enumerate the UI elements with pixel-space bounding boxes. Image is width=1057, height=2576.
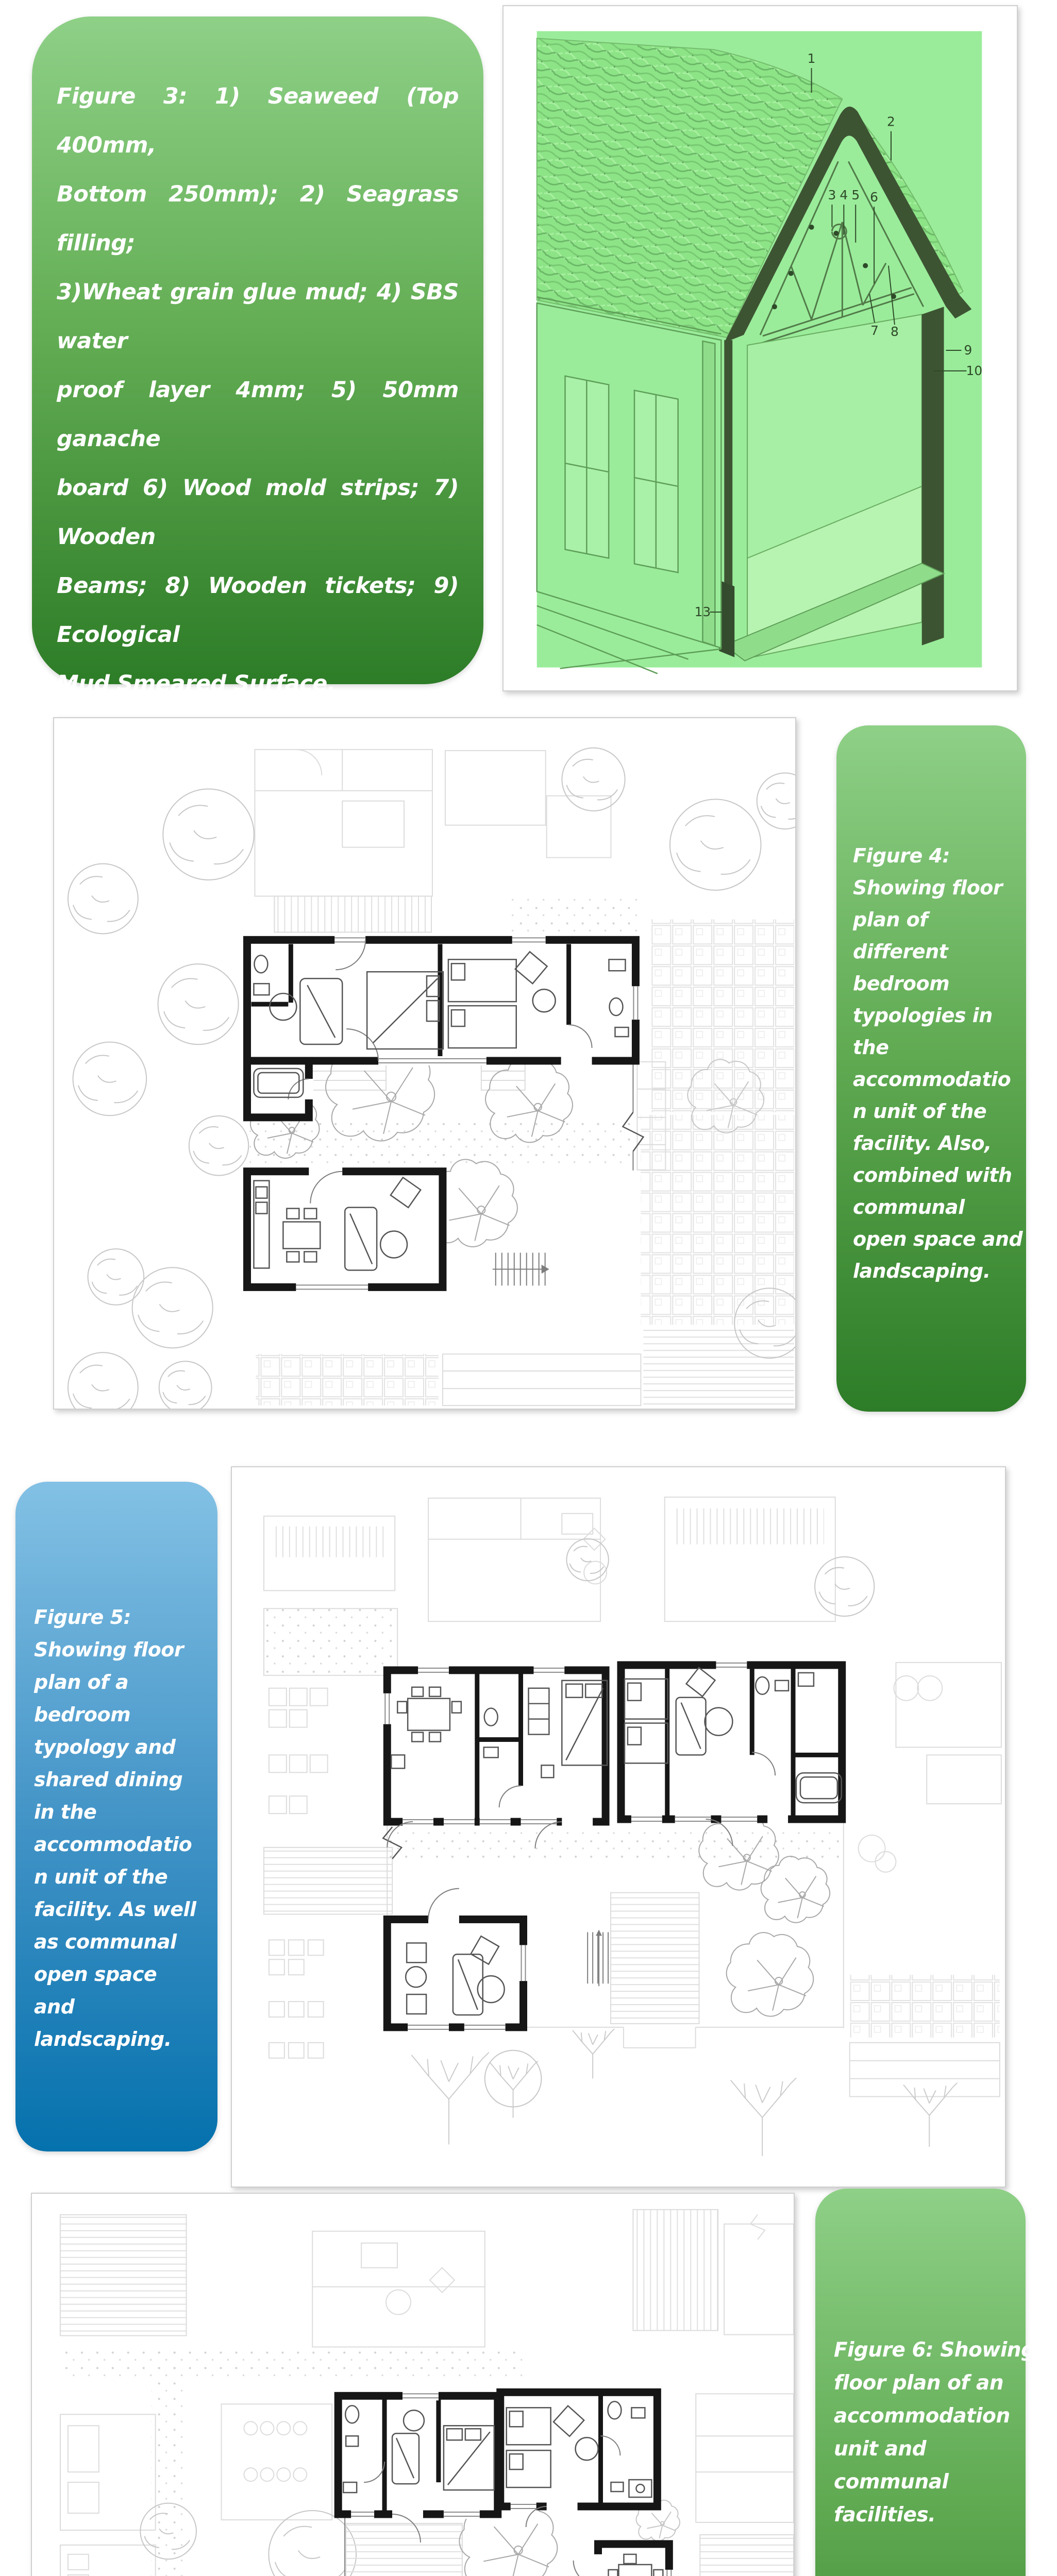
- figure3-caption-box: Figure 3: 1) Seaweed (Top 400mm,Bottom 2…: [32, 16, 483, 684]
- caption-line: Figure 3: 1) Seaweed (Top 400mm,: [57, 72, 459, 170]
- caption-line: Showing floor: [853, 872, 1013, 904]
- caption-line: Figure 6: Showing: [834, 2334, 1012, 2367]
- site-background: [264, 1497, 1001, 2156]
- figure3-caption: Figure 3: 1) Seaweed (Top 400mm,Bottom 2…: [57, 72, 459, 708]
- caption-line: communal: [853, 1191, 1013, 1223]
- caption-line: Bottom 250mm); 2) Seagrass filling;: [57, 170, 459, 268]
- callout-2: 2: [887, 114, 895, 129]
- callout-5: 5: [851, 188, 860, 202]
- house-cutaway-drawing: 1 2 3 4 5 6 7 8 9 10 13: [504, 6, 1017, 690]
- floor-plan-figure4: [54, 718, 795, 1409]
- floor-plan-figure5: [232, 1467, 1005, 2187]
- floor-plan-figure6: [32, 2194, 794, 2576]
- caption-line: facility. As well: [34, 1893, 204, 1926]
- caption-line: shared dining: [34, 1764, 204, 1796]
- caption-line: bedroom: [853, 968, 1013, 999]
- caption-line: floor plan of an: [834, 2367, 1012, 2400]
- caption-line: facility. Also,: [853, 1127, 1013, 1159]
- figure5-caption: Figure 5:Showing floorplan of abedroomty…: [34, 1601, 204, 2056]
- callout-7: 7: [870, 323, 879, 338]
- figure5-caption-box: Figure 5:Showing floorplan of abedroomty…: [15, 1482, 217, 2151]
- caption-line: open space: [34, 1958, 204, 1991]
- caption-line: plan of: [853, 904, 1013, 936]
- building-walls: [247, 938, 637, 1289]
- caption-line: proof layer 4mm; 5) 50mm ganache: [57, 366, 459, 464]
- caption-line: the: [853, 1031, 1013, 1063]
- site-background: [68, 748, 795, 1409]
- caption-line: accommodatio: [34, 1828, 204, 1861]
- figure6-caption-box: Figure 6: Showingfloor plan of anaccommo…: [815, 2189, 1026, 2576]
- caption-line: n unit of the: [853, 1095, 1013, 1127]
- caption-line: accommodatio: [853, 1063, 1013, 1095]
- callout-3: 3: [828, 188, 836, 202]
- callout-10: 10: [966, 363, 982, 378]
- caption-line: landscaping.: [34, 2023, 204, 2056]
- caption-line: landscaping.: [853, 1255, 1013, 1287]
- caption-line: combined with: [853, 1159, 1013, 1191]
- figure4-caption: Figure 4:Showing floorplan ofdifferentbe…: [853, 840, 1013, 1287]
- callout-9: 9: [964, 343, 972, 358]
- caption-line: Beams; 8) Wooden tickets; 9) Ecological: [57, 562, 459, 659]
- caption-line: typologies in: [853, 999, 1013, 1031]
- callout-6: 6: [870, 190, 878, 205]
- caption-line: in the: [34, 1796, 204, 1828]
- callout-4: 4: [840, 188, 848, 202]
- cutaway-interior: [719, 307, 944, 660]
- caption-line: open space and: [853, 1223, 1013, 1255]
- caption-line: Mud Smeared Surface.: [57, 659, 459, 708]
- callout-8: 8: [891, 324, 899, 339]
- caption-line: Showing floor: [34, 1634, 204, 1666]
- caption-line: n unit of the: [34, 1861, 204, 1893]
- figure6-image-frame: [31, 2193, 795, 2576]
- callout-13: 13: [695, 604, 711, 619]
- caption-line: as communal: [34, 1926, 204, 1958]
- caption-line: board 6) Wood mold strips; 7) Wooden: [57, 464, 459, 562]
- stairs: [493, 1252, 548, 1285]
- callout-1: 1: [808, 51, 816, 66]
- caption-line: communal: [834, 2466, 1012, 2499]
- caption-line: and: [34, 1991, 204, 2023]
- figure4-image-frame: [53, 717, 796, 1410]
- caption-line: typology and: [34, 1731, 204, 1764]
- caption-line: Figure 5:: [34, 1601, 204, 1634]
- caption-line: 3)Wheat grain glue mud; 4) SBS water: [57, 268, 459, 366]
- caption-line: different: [853, 936, 1013, 968]
- figure6-caption: Figure 6: Showingfloor plan of anaccommo…: [834, 2334, 1012, 2532]
- caption-line: Figure 4:: [853, 840, 1013, 872]
- caption-line: accommodation: [834, 2400, 1012, 2433]
- figure3-image-frame: 1 2 3 4 5 6 7 8 9 10 13: [502, 5, 1018, 691]
- caption-line: unit and: [834, 2433, 1012, 2466]
- figure4-caption-box: Figure 4:Showing floorplan ofdifferentbe…: [836, 725, 1026, 1412]
- figure5-image-frame: [231, 1466, 1006, 2188]
- caption-line: facilities.: [834, 2499, 1012, 2532]
- caption-line: plan of a: [34, 1666, 204, 1699]
- caption-line: bedroom: [34, 1699, 204, 1731]
